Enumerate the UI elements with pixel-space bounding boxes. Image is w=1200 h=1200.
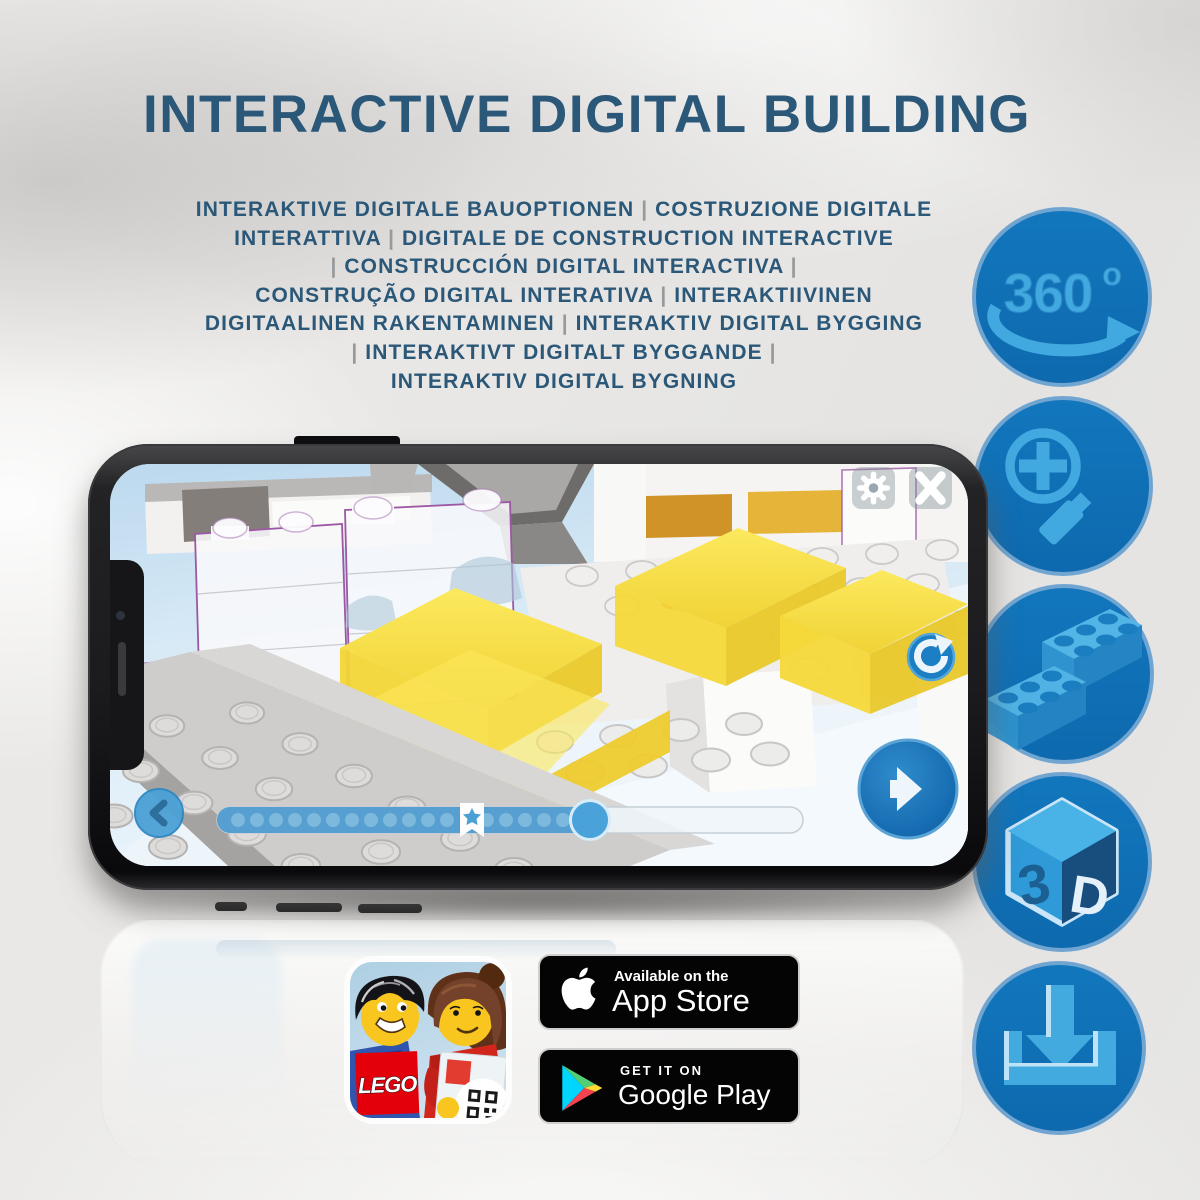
svg-text:360: 360 <box>1004 262 1093 324</box>
svg-text:LEGO: LEGO <box>358 1071 418 1098</box>
svg-text:o: o <box>1102 256 1122 292</box>
